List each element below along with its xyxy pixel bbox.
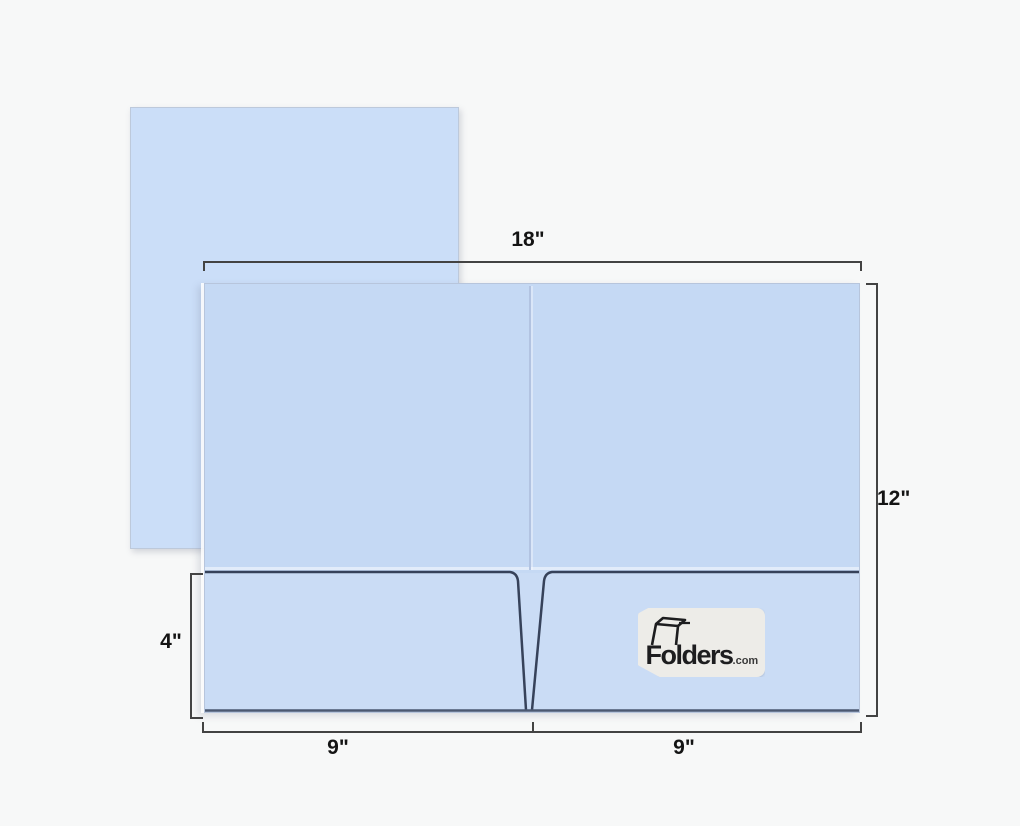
left-panel-label: 9" (306, 736, 370, 759)
center-tick (532, 722, 534, 731)
height-label: 12" (877, 487, 927, 510)
folders-logo-card: Folders.com (638, 608, 765, 677)
right-panel-label: 9" (652, 736, 716, 759)
width-label: 18" (498, 228, 558, 251)
folders-logo: Folders.com (646, 615, 758, 671)
brand-name: Folders (646, 640, 733, 670)
brand-suffix: .com (733, 655, 759, 667)
panel-widths-dimension-line (202, 722, 862, 733)
pocket-depth-label: 4" (149, 630, 193, 653)
presentation-folder: Folders.com (204, 283, 860, 713)
width-dimension-line (203, 261, 862, 271)
product-dimension-diagram: Folders.com 18" 12" 4" 9" 9" (0, 0, 1020, 826)
folders-logo-text: Folders.com (646, 642, 759, 669)
